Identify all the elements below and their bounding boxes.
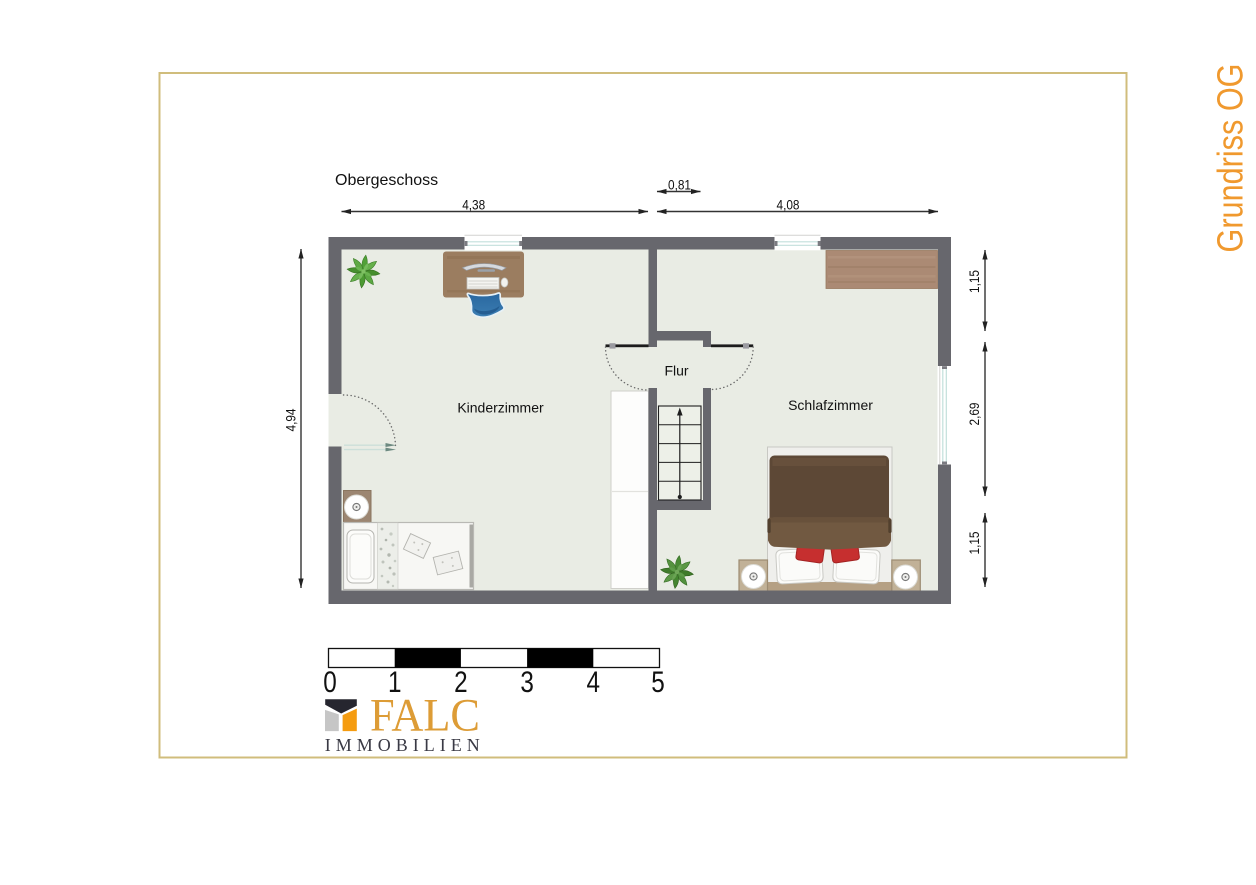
svg-text:FALC: FALC [370, 690, 480, 742]
svg-text:2,69: 2,69 [966, 402, 982, 425]
svg-text:5: 5 [651, 666, 665, 699]
svg-text:1,15: 1,15 [966, 531, 982, 554]
svg-text:4,08: 4,08 [777, 197, 800, 213]
svg-text:4: 4 [587, 666, 601, 699]
svg-text:Kinderzimmer: Kinderzimmer [457, 400, 544, 416]
svg-text:IMMOBILIEN: IMMOBILIEN [325, 735, 480, 755]
svg-text:Obergeschoss: Obergeschoss [335, 172, 438, 189]
svg-text:4,38: 4,38 [462, 197, 485, 213]
svg-text:3: 3 [520, 666, 534, 699]
svg-text:1,15: 1,15 [966, 270, 982, 293]
svg-text:Schlafzimmer: Schlafzimmer [788, 397, 873, 413]
svg-text:Flur: Flur [664, 363, 688, 379]
svg-text:Grundriss OG: Grundriss OG [1210, 64, 1251, 253]
svg-text:0: 0 [323, 666, 337, 699]
svg-text:0,81: 0,81 [668, 177, 691, 193]
svg-text:4,94: 4,94 [283, 408, 299, 431]
